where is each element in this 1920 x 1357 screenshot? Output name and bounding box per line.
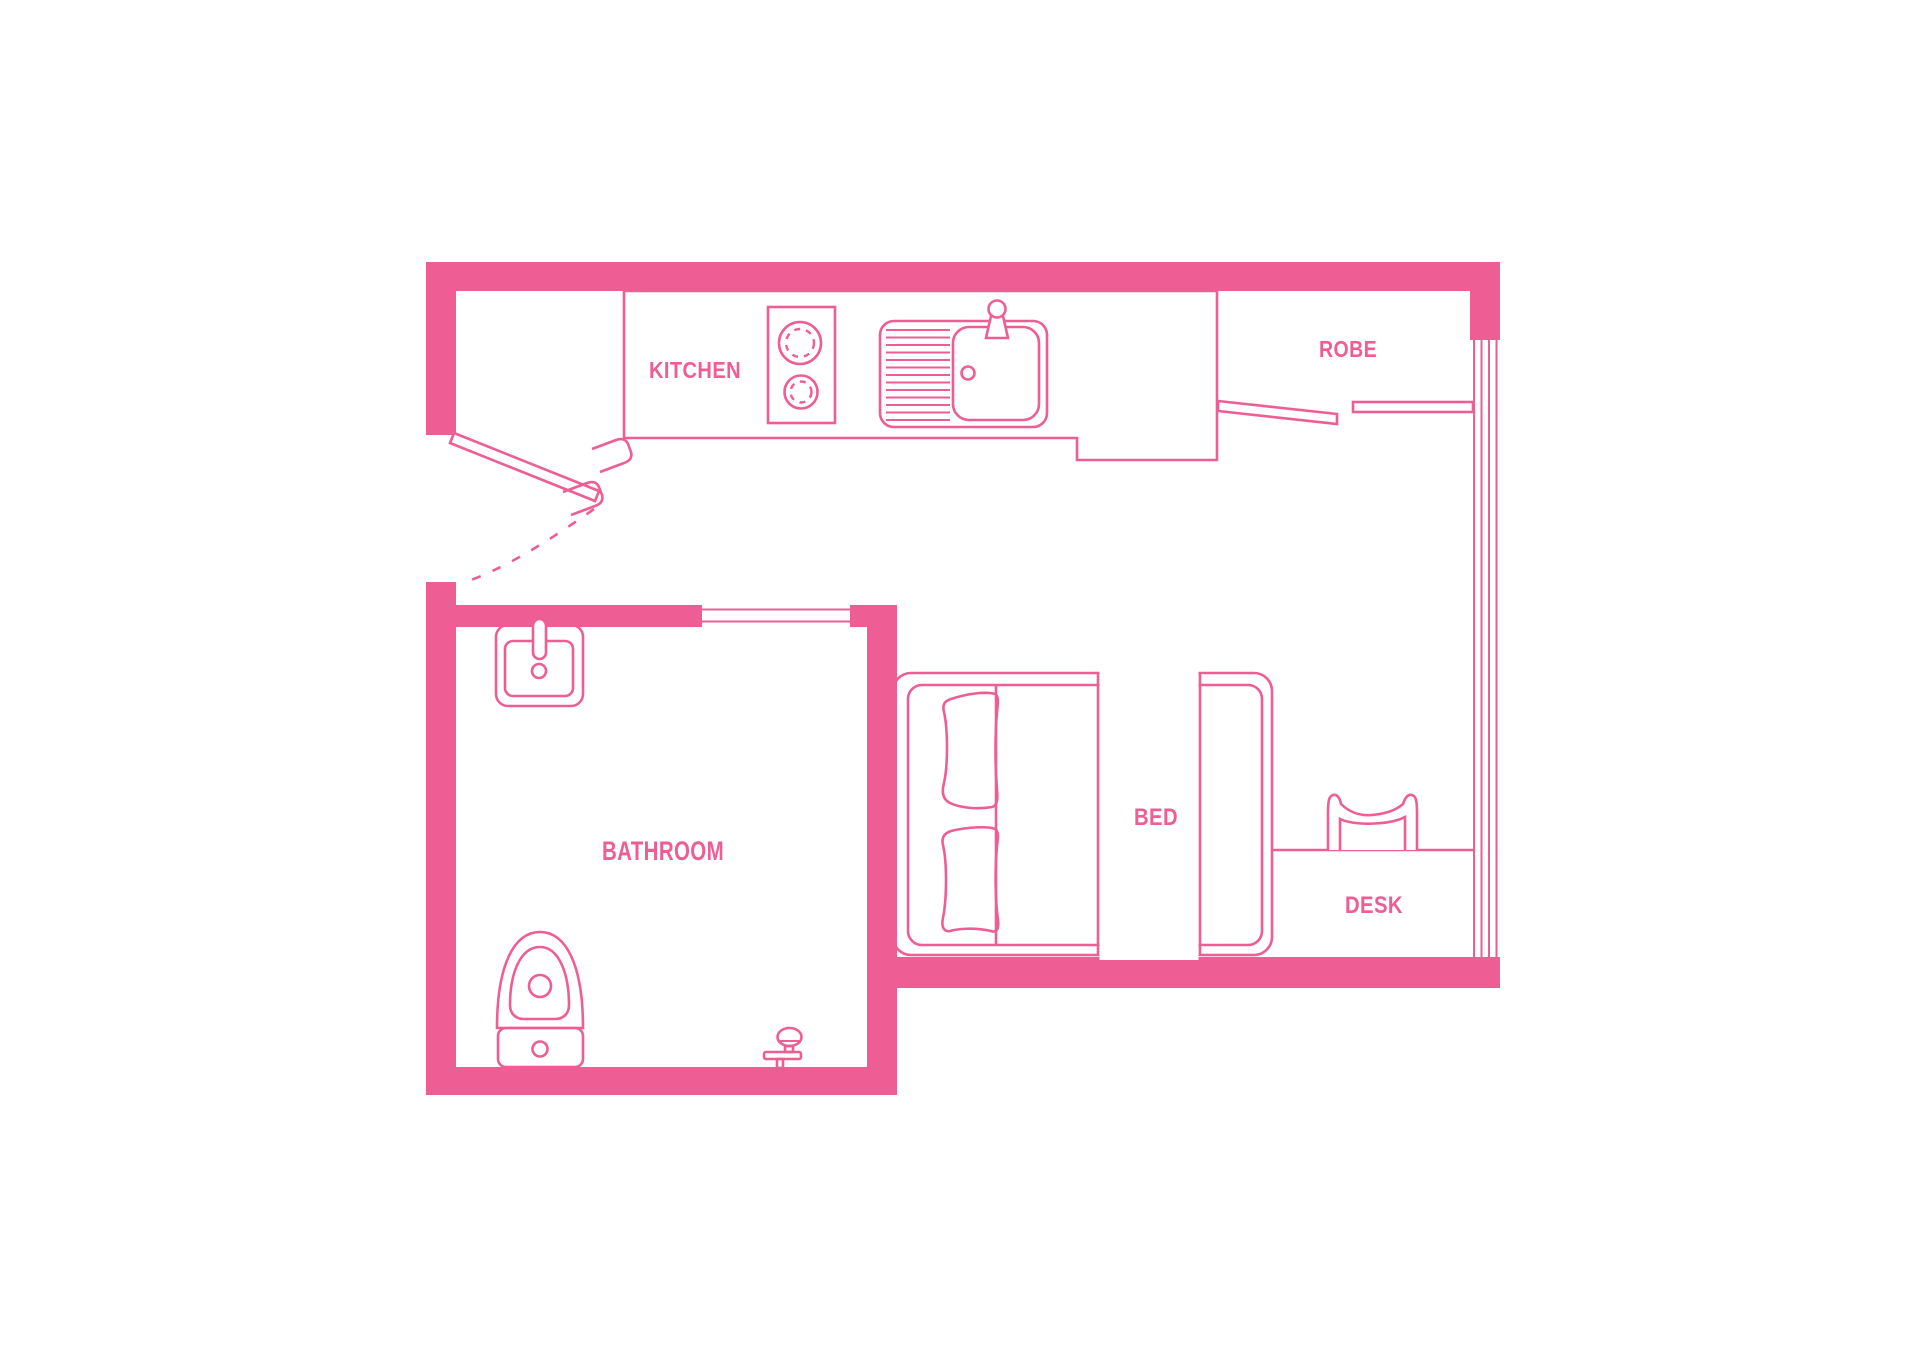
wall-bathroom-bottom: [426, 1067, 897, 1095]
desk-label: DESK: [1345, 892, 1403, 919]
toilet-icon: [497, 932, 583, 1067]
wall-bathroom-left: [426, 582, 456, 1095]
burner-large-inner: [786, 329, 814, 357]
bed-area: [893, 668, 1272, 960]
shower-head: [778, 1028, 802, 1046]
drainboard-lines: [886, 330, 950, 420]
chair-icon: [1328, 795, 1417, 850]
shower-drain-icon: [764, 1028, 802, 1068]
toilet-cistern: [498, 1028, 583, 1067]
door-leaf: [450, 433, 599, 501]
sink-basin: [953, 327, 1039, 420]
bed-frame: [893, 673, 1272, 955]
wall-left-upper: [426, 262, 456, 435]
entry-door: [450, 433, 631, 581]
robe-area: [1218, 401, 1473, 424]
door-handle-icon: [592, 439, 631, 472]
bathroom-door-opening: [702, 610, 850, 622]
toilet-bowl-inner: [510, 947, 569, 1019]
toilet-button: [533, 1042, 548, 1057]
basin-tap: [533, 619, 546, 659]
bathroom-sink-icon: [496, 619, 583, 706]
basin-drain: [532, 664, 546, 678]
wall-bottom: [867, 957, 1500, 988]
bed-label: BED: [1134, 804, 1178, 831]
kitchen-sink-icon: [880, 301, 1047, 428]
wall-bathroom-top-right: [850, 605, 897, 627]
faucet-knob: [989, 301, 1006, 318]
wall-bathroom-top-left: [456, 605, 702, 627]
wall-top-right-return: [1470, 262, 1500, 340]
pillow: [943, 693, 998, 808]
shower-stub: [777, 1059, 783, 1068]
robe-door-straight: [1353, 402, 1473, 412]
toilet-flush: [529, 975, 551, 997]
faucet-spout: [986, 316, 1008, 338]
robe-label: ROBE: [1319, 336, 1377, 362]
floor-plan: KITCHEN ROBE BATHROOM BED DESK: [0, 0, 1920, 1357]
bed-mattress: [908, 685, 1262, 945]
floor-plan-canvas: KITCHEN ROBE BATHROOM BED DESK: [0, 0, 1920, 1357]
pillow: [942, 827, 998, 931]
bathroom-label: BATHROOM: [602, 836, 724, 866]
door-swing-arc: [468, 509, 594, 581]
window-glazing: [1474, 340, 1497, 957]
kitchen-label: KITCHEN: [649, 357, 741, 383]
wall-top: [426, 262, 1500, 291]
cooktop-icon: [768, 307, 835, 423]
burner-small-inner: [791, 382, 812, 403]
desk-area: [1272, 795, 1474, 850]
robe-door-slanted: [1218, 401, 1337, 424]
